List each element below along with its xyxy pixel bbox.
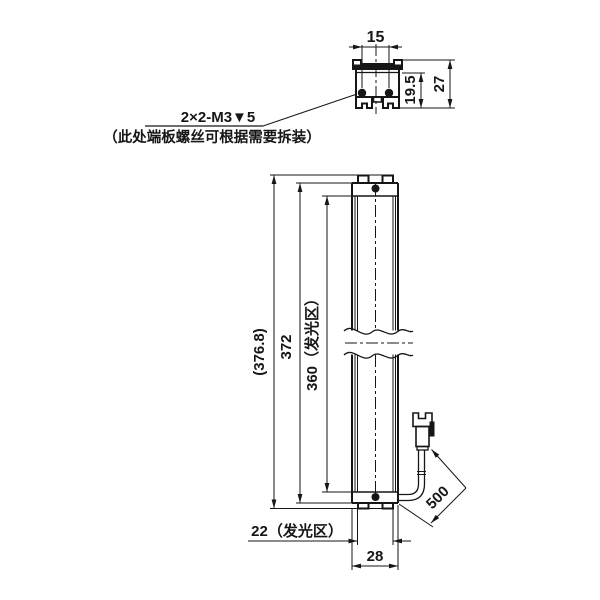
t-slot-foot-right	[383, 97, 399, 108]
leader-line	[263, 94, 357, 126]
dim-label-cable-length: 500	[423, 483, 453, 513]
cable-bend-outer	[399, 484, 425, 501]
t-slot-foot-left	[356, 97, 372, 108]
thread-callout: 2×2-M3▼5 （此处端板螺丝可根据需要拆装）	[103, 94, 357, 146]
dim-label-body-length: 372	[278, 334, 295, 359]
arrowhead	[298, 494, 303, 503]
top-tab-left	[358, 176, 369, 184]
arrowhead	[353, 45, 362, 50]
dim-label-inner-height: 19.5	[402, 75, 419, 104]
drawing-sheet: 15 19.5 27 2×2-M3▼5 （此处端板螺丝可根据需要拆装）	[0, 0, 600, 600]
connector-latch	[430, 422, 435, 437]
connector-head	[413, 413, 432, 427]
thread-spec-label: 2×2-M3▼5	[181, 109, 255, 126]
cable-connector: 500	[399, 413, 467, 527]
top-tab-right	[383, 176, 394, 184]
arrowhead	[419, 99, 424, 108]
arrowhead	[272, 175, 277, 184]
arrowhead	[325, 483, 330, 492]
arrowhead	[325, 196, 330, 205]
engineering-drawing-canvas: 15 19.5 27 2×2-M3▼5 （此处端板螺丝可根据需要拆装）	[0, 0, 600, 600]
dim-label-overall-width: 28	[367, 548, 384, 565]
arrowhead	[389, 564, 398, 569]
dim-label-overall-height: 27	[431, 76, 448, 93]
end-plate-screw-left	[358, 89, 366, 97]
arrowhead	[448, 99, 453, 108]
cable-bend-inner	[399, 484, 419, 495]
cable-wire	[419, 450, 425, 484]
dim-label-screw-spacing: 15	[367, 29, 385, 46]
break-line-upper	[344, 328, 413, 334]
section-view: 15 19.5 27	[349, 29, 455, 114]
dim-label-glow-width: 22（发光区）	[251, 522, 343, 540]
connector-body	[416, 427, 429, 447]
arrowhead	[389, 45, 398, 50]
arrowhead	[272, 500, 277, 509]
dim-label-overall-length: (376.8)	[251, 328, 268, 376]
arrowhead	[419, 73, 424, 82]
callout-note-label: （此处端板螺丝可根据需要拆装）	[103, 128, 321, 146]
arrowhead	[448, 60, 453, 69]
front-view: (376.8) 372 360（发光区） 22（发光区） 28	[248, 175, 413, 570]
break-line-lower	[344, 352, 413, 358]
arrowhead	[349, 539, 358, 544]
arrowhead	[352, 564, 361, 569]
ext-line	[399, 504, 433, 527]
end-plate-screw-right	[385, 89, 393, 97]
arrowhead	[298, 183, 303, 192]
connector-neck	[417, 447, 428, 451]
dim-label-glow-length: 360（发光区）	[303, 291, 321, 391]
